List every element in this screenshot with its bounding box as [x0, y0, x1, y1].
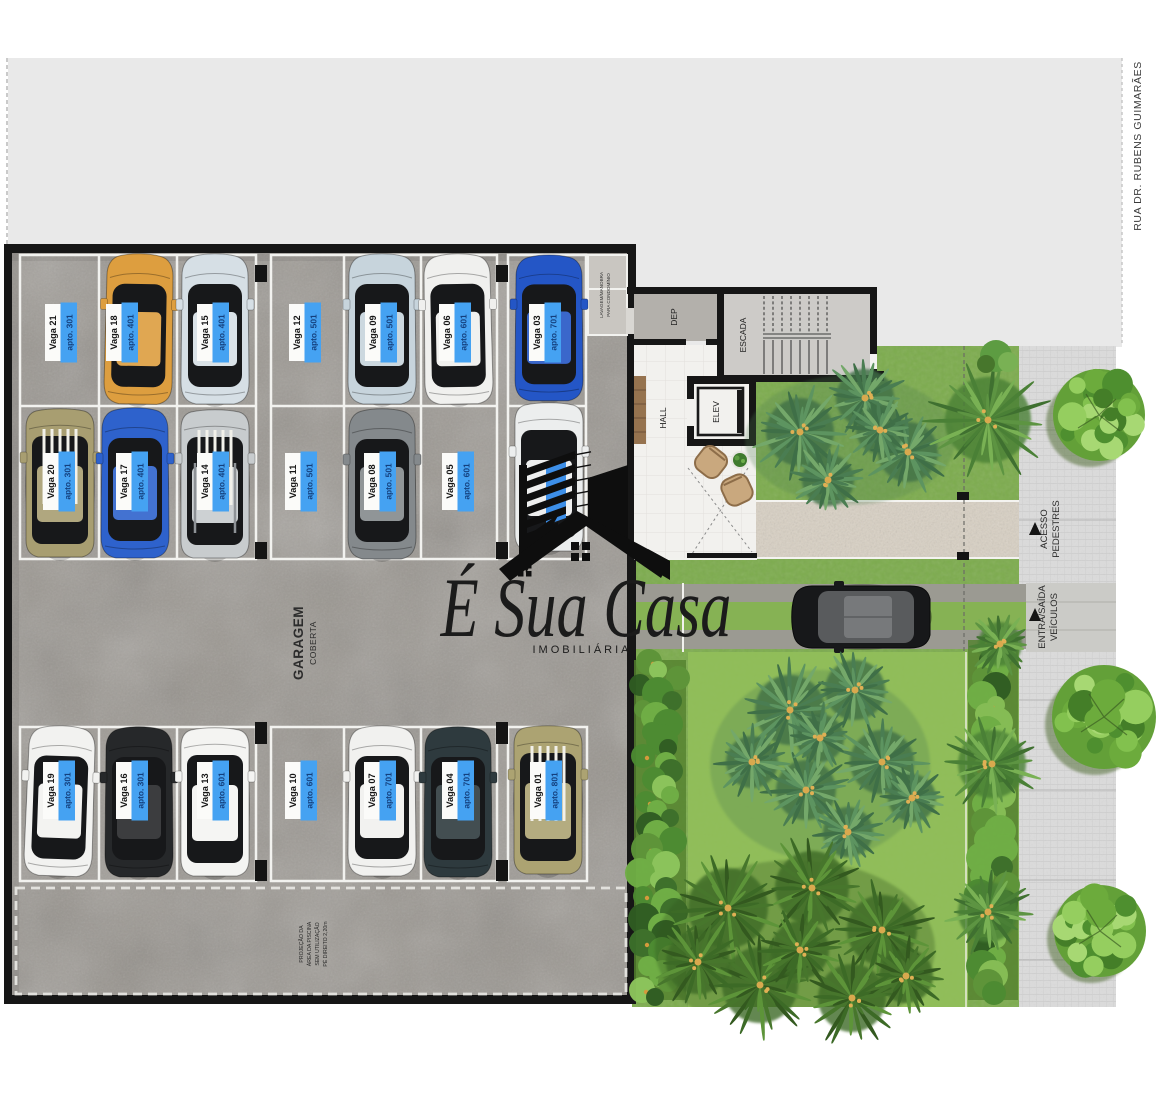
- svg-text:ELEV: ELEV: [711, 401, 721, 423]
- svg-text:apto. 701: apto. 701: [383, 772, 393, 809]
- svg-text:apto. 701: apto. 701: [548, 314, 558, 351]
- svg-text:PÉ DIREITO 2,20m: PÉ DIREITO 2,20m: [322, 921, 329, 966]
- svg-text:apto. 601: apto. 601: [216, 772, 226, 809]
- svg-text:PEDESTRES: PEDESTRES: [1051, 500, 1062, 558]
- svg-text:RUA DR. RUBENS GUIMARÃES: RUA DR. RUBENS GUIMARÃES: [1131, 61, 1144, 231]
- svg-text:Vaga 06: Vaga 06: [442, 315, 452, 349]
- svg-text:VEÍCULOS: VEÍCULOS: [1049, 593, 1060, 641]
- svg-text:LAVAGEM/MANOBRA: LAVAGEM/MANOBRA: [599, 271, 604, 318]
- svg-text:apto. 501: apto. 501: [308, 314, 318, 351]
- svg-text:Vaga 08: Vaga 08: [367, 464, 377, 498]
- svg-text:SEM UTILIZAÇÃO: SEM UTILIZAÇÃO: [314, 922, 321, 965]
- svg-text:apto. 401: apto. 401: [216, 314, 226, 351]
- svg-text:DEP: DEP: [669, 308, 679, 326]
- svg-text:Vaga 04: Vaga 04: [445, 773, 455, 808]
- svg-text:apto. 401: apto. 401: [135, 463, 145, 500]
- svg-text:Vaga 16: Vaga 16: [119, 773, 129, 807]
- svg-text:apto. 301: apto. 301: [135, 772, 145, 809]
- svg-text:apto. 301: apto. 301: [62, 772, 72, 809]
- svg-text:ESCADA: ESCADA: [738, 317, 748, 352]
- svg-text:Vaga 03: Vaga 03: [532, 315, 542, 349]
- svg-text:COBERTA: COBERTA: [308, 621, 318, 665]
- svg-text:Vaga 09: Vaga 09: [368, 315, 378, 349]
- svg-text:apto. 501: apto. 501: [383, 463, 393, 500]
- svg-text:É Sua Casa: É Sua Casa: [440, 562, 732, 656]
- svg-text:Vaga 05: Vaga 05: [445, 464, 455, 498]
- svg-text:PARA CONDOMÍNIO: PARA CONDOMÍNIO: [605, 273, 611, 317]
- svg-text:Vaga 07: Vaga 07: [367, 773, 377, 807]
- svg-text:apto. 701: apto. 701: [461, 772, 471, 809]
- svg-text:apto. 401: apto. 401: [216, 463, 226, 500]
- svg-text:Vaga 13: Vaga 13: [200, 773, 210, 807]
- svg-text:apto. 501: apto. 501: [384, 314, 394, 351]
- svg-text:apto. 501: apto. 501: [304, 463, 314, 500]
- svg-text:apto. 301: apto. 301: [64, 314, 74, 351]
- svg-text:apto. 601: apto. 601: [458, 314, 468, 351]
- svg-text:Vaga 18: Vaga 18: [109, 315, 119, 349]
- svg-text:apto. 301: apto. 301: [62, 463, 72, 500]
- svg-text:Vaga 14: Vaga 14: [200, 464, 210, 499]
- svg-text:HALL: HALL: [658, 407, 668, 429]
- svg-text:Vaga 17: Vaga 17: [119, 464, 129, 498]
- svg-text:apto. 401: apto. 401: [125, 314, 135, 351]
- svg-text:Vaga 21: Vaga 21: [48, 315, 58, 349]
- svg-text:Vaga 19: Vaga 19: [46, 773, 56, 807]
- svg-text:Vaga 15: Vaga 15: [200, 315, 210, 349]
- svg-text:GARAGEM: GARAGEM: [291, 606, 306, 680]
- svg-text:Vaga 20: Vaga 20: [46, 464, 56, 498]
- svg-text:apto. 601: apto. 601: [461, 463, 471, 500]
- svg-text:PROJEÇÃO DA: PROJEÇÃO DA: [298, 925, 305, 963]
- svg-text:apto. 601: apto. 601: [304, 772, 314, 809]
- svg-text:ACESSO: ACESSO: [1039, 509, 1050, 549]
- svg-text:apto. 801: apto. 801: [549, 772, 559, 809]
- svg-text:Vaga 10: Vaga 10: [288, 773, 298, 807]
- svg-text:IMOBILIÁRIA: IMOBILIÁRIA: [532, 643, 631, 656]
- svg-text:ÁREA DA PISCINA: ÁREA DA PISCINA: [306, 921, 313, 966]
- svg-text:Vaga 12: Vaga 12: [292, 315, 302, 349]
- svg-text:Vaga 01: Vaga 01: [533, 773, 543, 807]
- svg-text:Vaga 11: Vaga 11: [288, 465, 298, 499]
